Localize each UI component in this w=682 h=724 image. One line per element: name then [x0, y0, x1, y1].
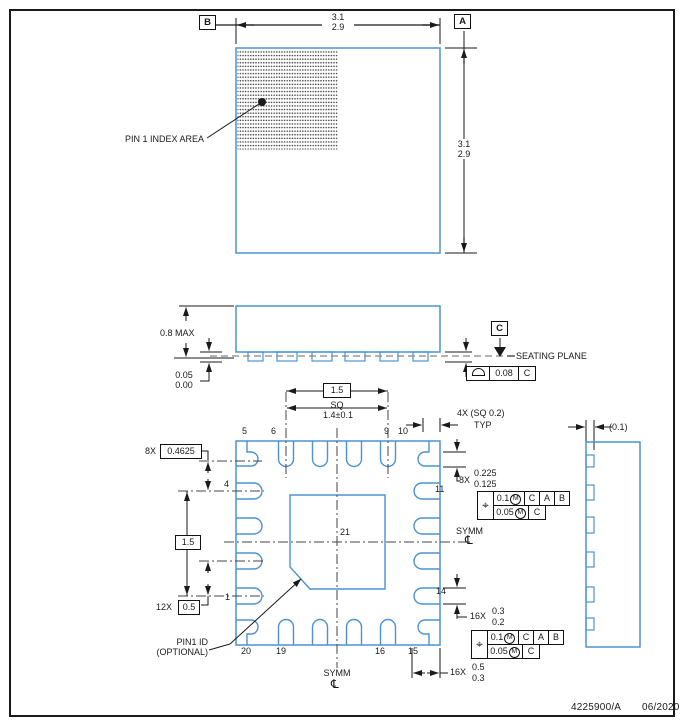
pitch-count: 12X	[156, 602, 172, 612]
pitch-span-dim: 1.5	[175, 535, 201, 550]
drawing-linework	[0, 0, 682, 724]
pin-number-15: 15	[408, 646, 418, 656]
lead-length-count: 16X	[450, 667, 466, 677]
position-symbol-icon: ⌖	[477, 491, 494, 520]
pin-number-1: 1	[225, 592, 230, 602]
right-side-view-leads	[586, 455, 594, 630]
profile-surface-symbol-cell	[466, 366, 490, 381]
top-height-max: 3.1	[449, 139, 479, 149]
position-tolerance-frame-bottom: ⌖ 0.1M C A B 0.05M C	[471, 630, 564, 659]
pad-width-max: 0.225	[474, 468, 497, 478]
top-height-min: 2.9	[449, 149, 479, 159]
flatness-datum-cell: C	[518, 366, 536, 381]
datum-c: C	[491, 321, 508, 336]
bottom-view	[236, 441, 440, 645]
right-side-view-outline	[586, 442, 640, 647]
pin1-id-label: PIN1 ID (OPTIONAL)	[128, 637, 208, 657]
fcf-datum-b-cell: B	[554, 491, 570, 506]
lead-width-count: 16X	[470, 611, 486, 621]
pin1-index-area-label: PIN 1 INDEX AREA	[118, 134, 204, 144]
package-drawing-page: B 3.1 2.9 A 3.1 2.9 PIN 1 INDEX AREA 0.8…	[0, 0, 682, 724]
top-width-dim: 3.1 2.9	[322, 12, 354, 32]
datum-b: B	[199, 15, 216, 30]
position-symbol-icon: ⌖	[471, 630, 488, 659]
lead-length-min: 0.3	[472, 673, 485, 683]
drawing-number: 4225900/A	[571, 702, 621, 713]
pad-width-min: 0.125	[474, 479, 497, 489]
pin-number-14: 14	[436, 586, 446, 596]
side-view-outline	[236, 306, 440, 352]
mmc-icon: M	[510, 494, 521, 505]
bottom-view-outline	[236, 441, 440, 645]
corner-pitch-dim: 0.4625	[160, 444, 202, 459]
fcf-datum-c-cell: C	[518, 630, 534, 645]
position-tolerance-frame-top: ⌖ 0.1M C A B 0.05M C	[477, 491, 570, 520]
mmc-icon: M	[515, 508, 526, 519]
datum-a: A	[454, 14, 471, 29]
fcf-tol1-cell: 0.1M	[493, 491, 525, 506]
fcf-datum-a-cell: A	[533, 630, 549, 645]
fcf-tol1-cell: 0.1M	[487, 630, 519, 645]
pin-number-16: 16	[375, 646, 385, 656]
centerline-symbol-bottom: ℄	[331, 679, 339, 689]
top-width-max: 3.1	[323, 12, 353, 22]
fcf-datum-c-cell: C	[524, 491, 540, 506]
pin1-id-line2: (OPTIONAL)	[156, 647, 208, 657]
flatness-tol-cell: 0.08	[489, 366, 519, 381]
right-side-view	[586, 442, 640, 647]
centerlines	[178, 392, 470, 668]
seating-plane-label: SEATING PLANE	[516, 351, 587, 361]
mmc-icon: M	[504, 633, 515, 644]
typ-label: TYP	[474, 420, 492, 430]
perimeter-pads	[236, 441, 440, 645]
lead-width-max: 0.3	[492, 606, 505, 616]
top-height-dim: 3.1 2.9	[448, 139, 480, 159]
pin-number-4: 4	[224, 479, 229, 489]
pin-number-5: 5	[242, 426, 247, 436]
thermal-pad-number: 21	[340, 527, 350, 537]
flatness-tolerance-frame: 0.08 C	[467, 366, 536, 381]
pin1-id-line1: PIN1 ID	[176, 637, 208, 647]
fcf-datum-a-cell: A	[539, 491, 555, 506]
seating-plane-datum-triangle	[494, 347, 506, 357]
pin-number-19: 19	[276, 646, 286, 656]
side-view	[236, 306, 440, 361]
pad-width-count: 8X	[459, 475, 470, 485]
drawing-date: 06/2020	[642, 702, 680, 713]
pin-number-9: 9	[384, 426, 389, 436]
profile-surface-icon	[472, 368, 485, 376]
body-height-dim: 0.8 MAX	[159, 328, 196, 338]
pin-number-11: 11	[435, 484, 444, 494]
pad-size-basic-dim: 1.5	[323, 383, 351, 398]
standoff-max: 0.05	[170, 370, 198, 380]
mmc-icon: M	[509, 647, 520, 658]
pin1-index-hatch	[238, 50, 338, 150]
fcf-datum-b-cell: B	[548, 630, 564, 645]
standoff-min: 0.00	[170, 380, 198, 390]
centerline-symbol-right: ℄	[465, 535, 473, 545]
sq-label: SQ	[325, 400, 349, 410]
fcf-tol2-cell: 0.05M	[487, 644, 523, 659]
pin-number-10: 10	[398, 426, 408, 436]
pad-size-tol-dim: 1.4±0.1	[315, 410, 361, 420]
corner-note: 4X (SQ 0.2)	[457, 408, 505, 418]
fcf-datum-c2-cell: C	[522, 644, 540, 659]
pin-number-20: 20	[241, 646, 251, 656]
corner-pitch-count: 8X	[145, 446, 156, 456]
pitch-dim: 0.5	[178, 600, 200, 615]
standoff-dim: 0.05 0.00	[170, 370, 198, 390]
fcf-datum-c2-cell: C	[528, 505, 546, 520]
pin-number-6: 6	[271, 426, 276, 436]
fcf-tol2-cell: 0.05M	[493, 505, 529, 520]
lead-width-min: 0.2	[492, 617, 505, 627]
top-width-min: 2.9	[323, 22, 353, 32]
lead-thickness-dim: (0.1)	[609, 422, 628, 432]
lead-length-max: 0.5	[472, 662, 485, 672]
